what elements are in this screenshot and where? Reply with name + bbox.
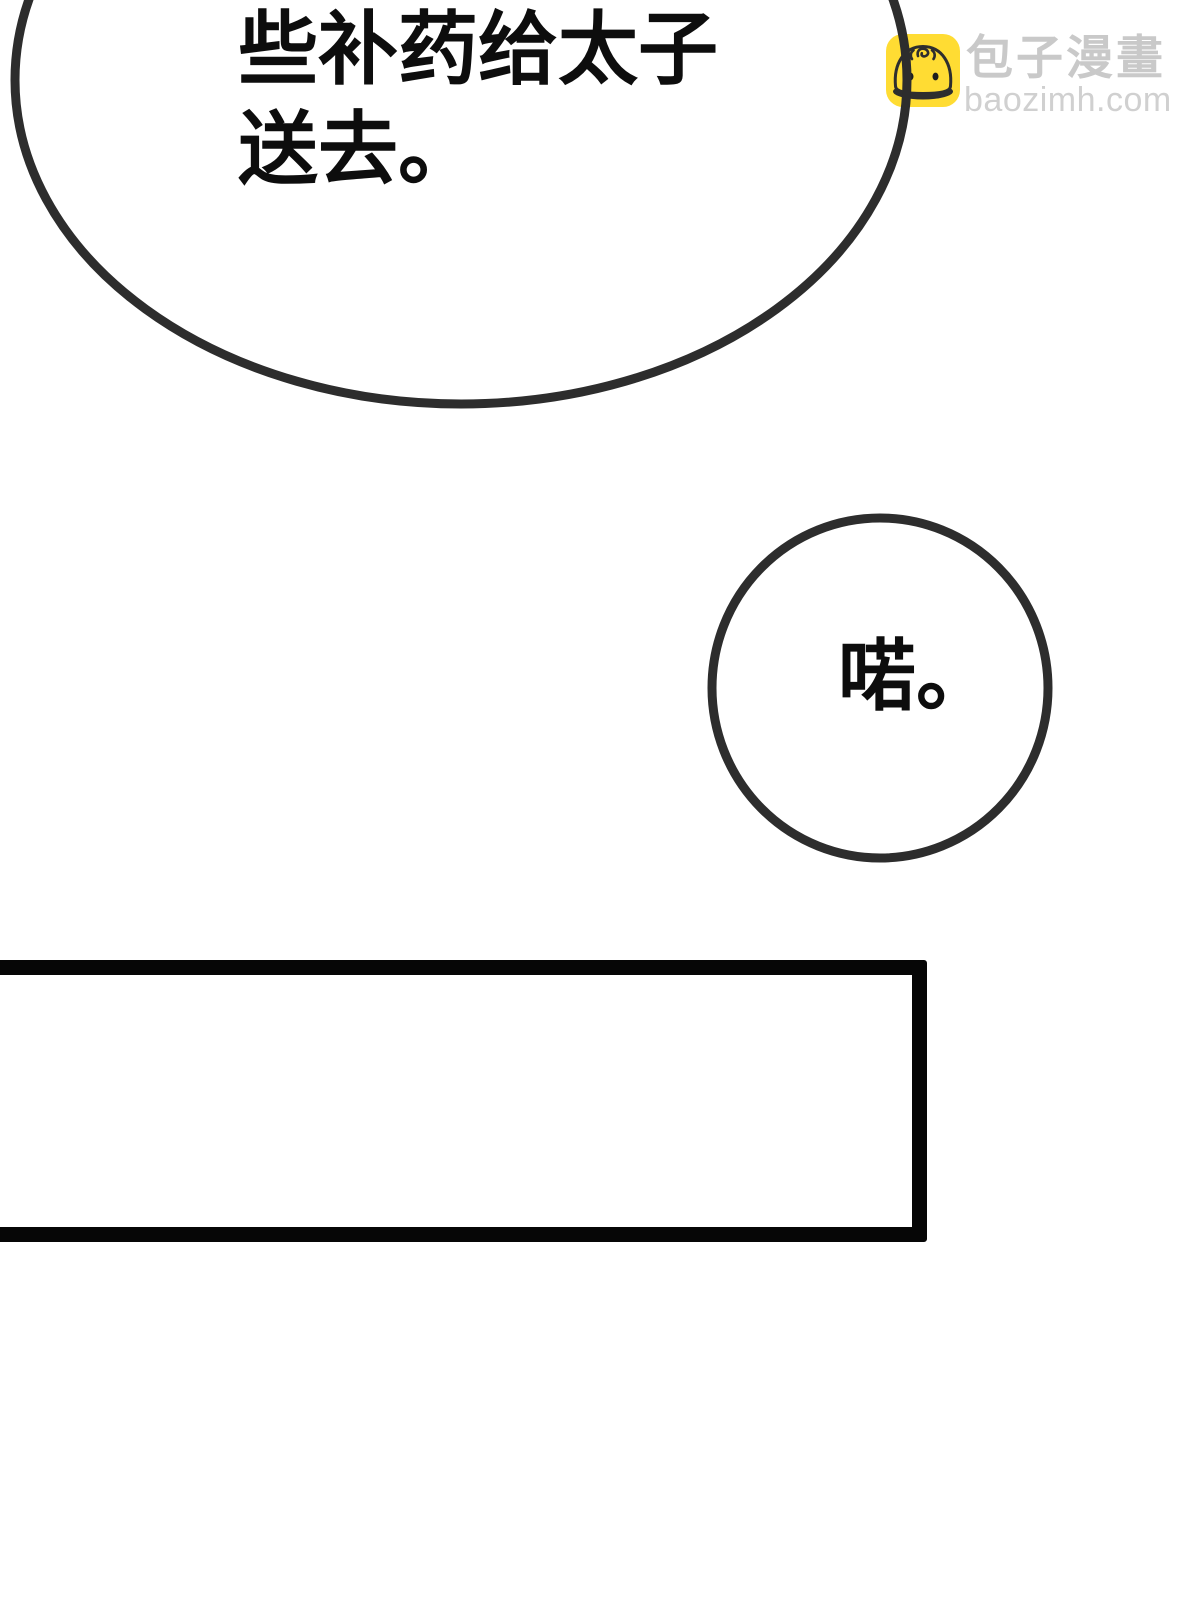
- speech-line-1: 些补药给太子: [238, 0, 718, 100]
- baozi-icon: [885, 33, 961, 108]
- comic-page: 包子漫畫 baozimh.com 些补药给太子 送去。 喏。: [0, 0, 1200, 1600]
- bubble-line-art: [0, 0, 1200, 1600]
- panel-frame: [0, 960, 927, 1242]
- speech-line-2: 送去。: [238, 100, 718, 200]
- baozi-eye-right: [933, 73, 939, 81]
- speech-bubble-main-text: 些补药给太子 送去。: [238, 0, 718, 200]
- brand-domain: baozimh.com: [964, 83, 1200, 117]
- brand-name: 包子漫畫: [966, 34, 1200, 81]
- baozi-eye-left: [908, 73, 914, 81]
- speech-bubble-reply-text: 喏。: [838, 632, 994, 722]
